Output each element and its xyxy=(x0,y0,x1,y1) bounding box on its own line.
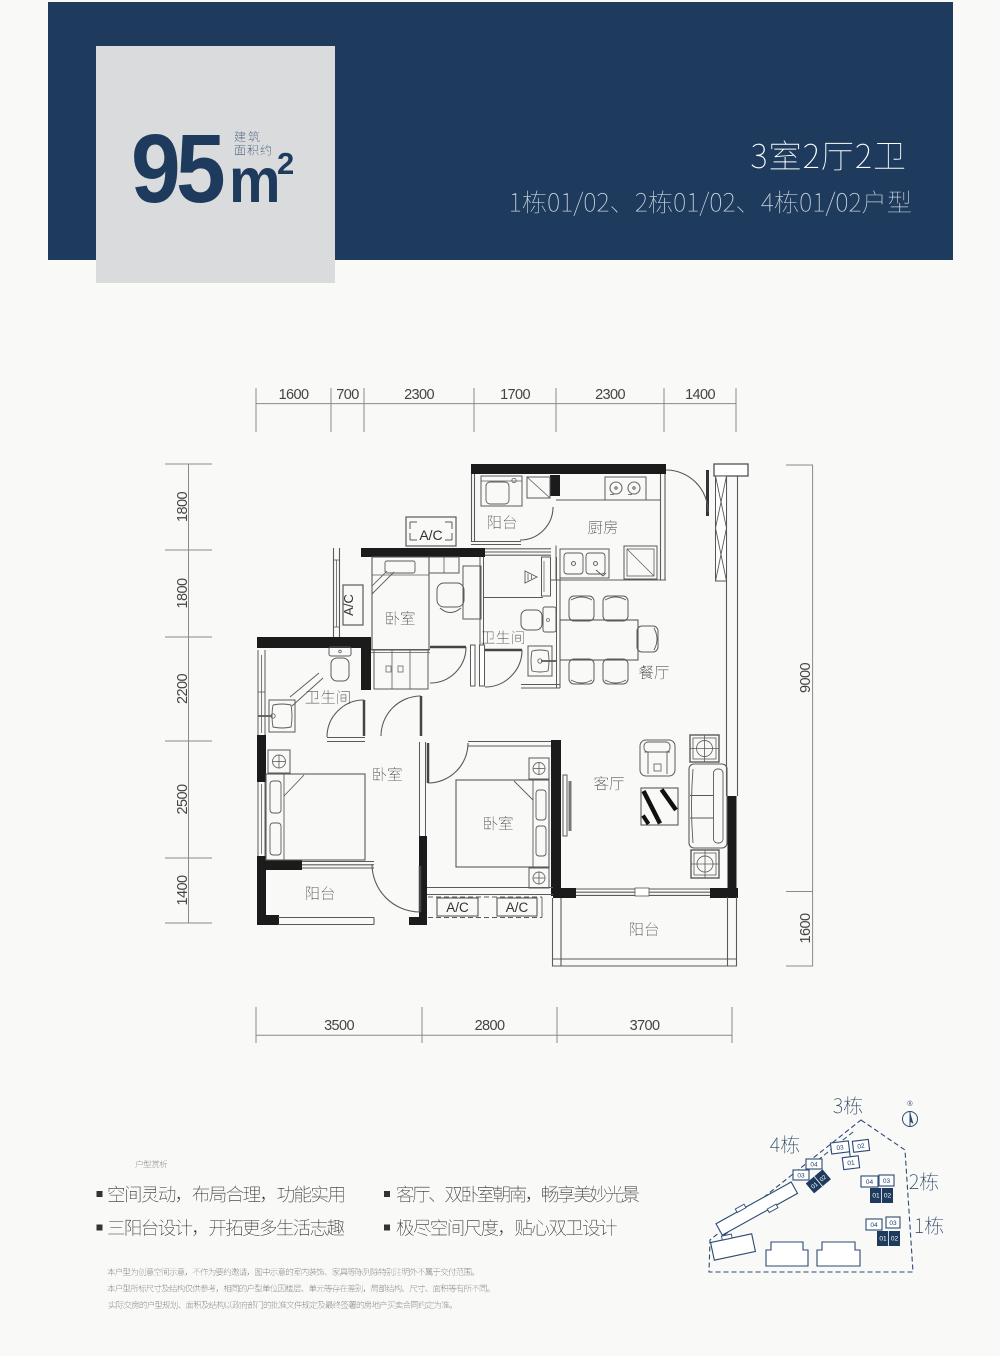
svg-text:1600: 1600 xyxy=(798,913,814,943)
svg-text:03: 03 xyxy=(797,1172,805,1179)
svg-text:2500: 2500 xyxy=(175,784,191,814)
svg-text:1700: 1700 xyxy=(500,387,530,403)
svg-text:03: 03 xyxy=(883,1178,891,1185)
svg-text:2800: 2800 xyxy=(475,1018,505,1034)
svg-text:700: 700 xyxy=(336,387,359,403)
svg-text:1800: 1800 xyxy=(175,578,191,608)
svg-text:04: 04 xyxy=(810,1161,818,1168)
svg-text:®: ® xyxy=(907,1100,913,1108)
svg-text:03: 03 xyxy=(889,1220,897,1227)
svg-text:A/C: A/C xyxy=(341,594,356,616)
svg-text:A/C: A/C xyxy=(419,527,442,543)
svg-text:3700: 3700 xyxy=(630,1018,660,1034)
svg-text:2200: 2200 xyxy=(175,674,191,704)
svg-text:03: 03 xyxy=(836,1144,844,1152)
svg-text:02: 02 xyxy=(857,1143,865,1151)
svg-text:2300: 2300 xyxy=(404,387,434,403)
svg-text:01: 01 xyxy=(879,1236,887,1243)
svg-text:1600: 1600 xyxy=(279,387,309,403)
svg-text:A/C: A/C xyxy=(506,900,529,915)
svg-text:2300: 2300 xyxy=(595,387,625,403)
svg-text:02: 02 xyxy=(884,1193,892,1200)
svg-text:01: 01 xyxy=(847,1160,855,1168)
svg-text:9000: 9000 xyxy=(798,663,814,693)
svg-text:A/C: A/C xyxy=(446,900,469,915)
svg-text:1400: 1400 xyxy=(175,875,191,905)
svg-text:01: 01 xyxy=(872,1193,880,1200)
svg-text:1800: 1800 xyxy=(175,492,191,522)
svg-text:04: 04 xyxy=(866,1179,874,1186)
svg-text:04: 04 xyxy=(870,1222,878,1229)
svg-text:02: 02 xyxy=(891,1236,899,1243)
svg-text:1400: 1400 xyxy=(685,387,715,403)
svg-text:3500: 3500 xyxy=(324,1018,354,1034)
